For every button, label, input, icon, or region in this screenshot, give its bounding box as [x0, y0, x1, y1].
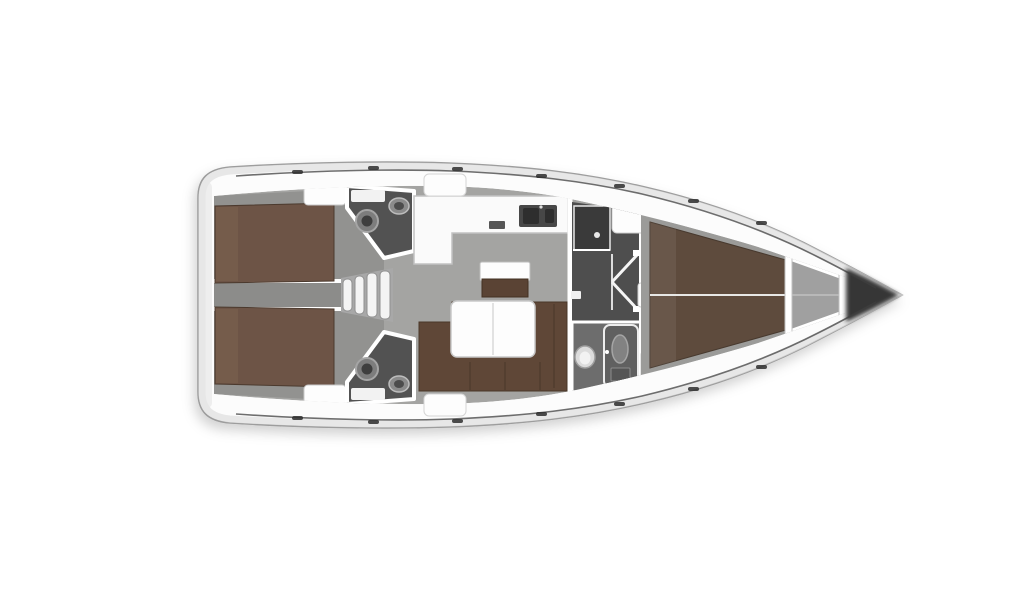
- deck-hatch-starboard: [424, 394, 466, 416]
- deck-fitting: [688, 387, 699, 391]
- aft-head-port-shelf: [351, 190, 385, 202]
- floorplan-svg: [0, 0, 1024, 600]
- companionway-tread-4: [380, 271, 390, 319]
- deck-fitting: [614, 184, 625, 188]
- companionway-tread-3: [367, 273, 377, 317]
- aft-head-port-sink-basin: [394, 202, 404, 210]
- yacht-floorplan-canvas: [0, 0, 1024, 600]
- deck-fitting: [292, 170, 303, 174]
- deck-fitting: [452, 419, 463, 423]
- forward-head-toilet-bowl: [580, 352, 591, 365]
- deck-fitting: [368, 420, 379, 424]
- stern-shading-band: [201, 182, 212, 408]
- deck-fitting: [292, 416, 303, 420]
- galley-sink-basin-right: [545, 209, 554, 223]
- shower-tray: [612, 335, 628, 363]
- companionway-tread-2: [355, 276, 364, 314]
- deck-fitting: [688, 199, 699, 203]
- aft-head-starboard-toilet-bowl: [362, 364, 373, 375]
- galley-faucet: [539, 205, 542, 208]
- forepeak-bulkhead: [785, 252, 792, 338]
- deck-fitting: [756, 365, 767, 369]
- saloon-cabinet-front: [482, 279, 528, 297]
- deck-fitting: [756, 221, 767, 225]
- deck-fitting: [368, 166, 379, 170]
- aft-head-starboard-sink-basin: [394, 380, 404, 388]
- deck-fitting: [536, 412, 547, 416]
- galley-stove: [489, 221, 505, 229]
- aft-bed-port-pillow: [216, 207, 238, 281]
- aft-head-starboard-shelf: [351, 388, 385, 400]
- companionway-tread-1: [343, 279, 352, 311]
- aft-head-port-toilet-bowl: [362, 216, 373, 227]
- deck-fitting: [452, 167, 463, 171]
- passage-latch: [571, 291, 581, 299]
- deck-hatch-port: [424, 174, 466, 196]
- saloon-cabinet-top: [480, 262, 530, 281]
- aft-bed-starboard-pillow: [216, 309, 238, 383]
- passage-wardrobe: [574, 206, 610, 250]
- deck-fitting: [536, 174, 547, 178]
- shower-door-handle: [605, 350, 609, 354]
- deck-fitting: [614, 402, 625, 406]
- passage-wardrobe-knob: [594, 232, 600, 238]
- galley-sink-basin-left: [523, 208, 539, 224]
- interior-group: [212, 183, 848, 407]
